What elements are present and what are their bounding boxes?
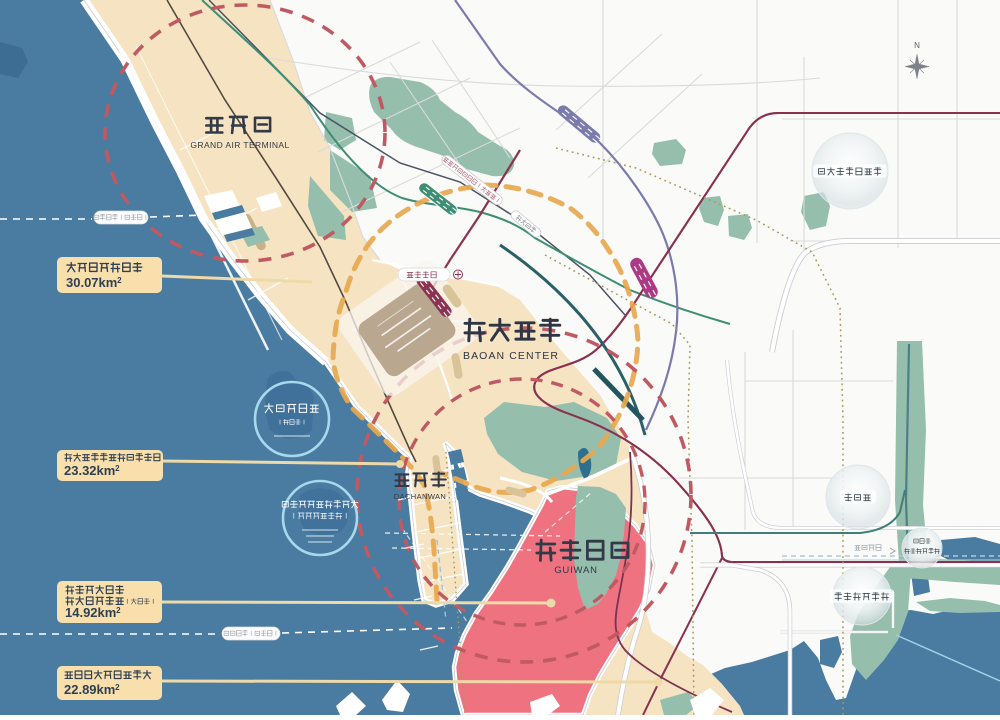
svg-text:2: 2 [115,683,120,692]
svg-text:22.89km: 22.89km [64,682,115,697]
svg-text:BAOAN CENTER: BAOAN CENTER [463,350,559,362]
svg-text:30.07km: 30.07km [66,275,117,290]
svg-text:GRAND AIR TERMINAL: GRAND AIR TERMINAL [190,140,289,150]
svg-text:GUIWAN: GUIWAN [554,565,598,576]
svg-text:2: 2 [116,606,121,615]
svg-text:14.92km: 14.92km [65,605,116,620]
svg-text:23.32km: 23.32km [64,463,115,478]
svg-text:2: 2 [117,276,122,285]
svg-text:2: 2 [115,464,120,473]
svg-text:DACHANWAN: DACHANWAN [394,492,447,501]
svg-text:N: N [914,41,920,50]
